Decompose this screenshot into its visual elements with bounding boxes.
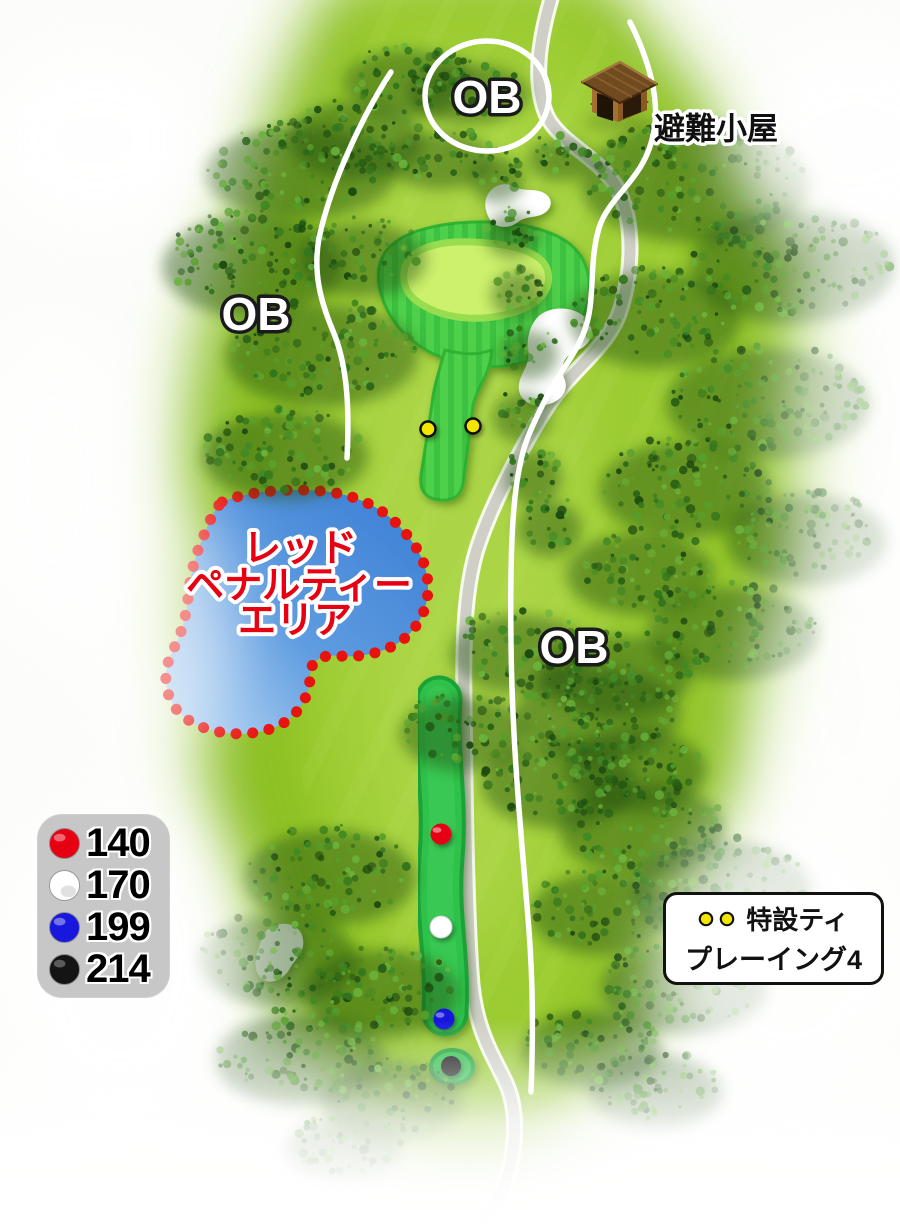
blue-tee-highlight <box>436 1012 445 1018</box>
bottom-fade <box>0 1020 900 1229</box>
legend-value-red: 140 <box>86 823 150 863</box>
special-tee-dot-left <box>421 422 436 437</box>
red-tee-icon <box>48 827 81 860</box>
penalty-label-line1: レッド <box>243 528 357 570</box>
white-tee-icon <box>48 869 81 902</box>
legend-value-white: 170 <box>86 865 150 905</box>
penalty-label-line3: エリア <box>238 600 352 642</box>
yellow-tee-icon <box>698 911 714 927</box>
special-tee-box: 特設ティ プレーイング4 <box>663 892 884 985</box>
golf-hole-guide-map: OB OB OB 避難小屋 レッド ペナルティー エリア 140 170 199 <box>0 0 900 1229</box>
legend-row-red: 140 <box>48 823 165 863</box>
red-tee-marker <box>431 824 452 845</box>
special-tee-label: 特設ティ <box>746 900 848 937</box>
legend-row-black: 214 <box>48 949 165 989</box>
hut-label: 避難小屋 <box>654 112 778 147</box>
special-tee-dots <box>698 911 735 927</box>
legend-row-white: 170 <box>48 865 165 905</box>
red-tee-highlight <box>433 827 442 833</box>
yellow-tee-icon <box>719 911 735 927</box>
special-tee-row: 特設ティ <box>698 900 848 937</box>
special-tee-dot-right <box>466 419 481 434</box>
ob-label-top: OB <box>453 71 522 123</box>
ob-label-left: OB <box>222 288 291 340</box>
legend-value-blue: 199 <box>86 907 150 947</box>
white-tee-marker <box>430 916 452 938</box>
ob-label-right: OB <box>540 621 609 673</box>
playing4-label: プレーイング4 <box>685 938 862 977</box>
tee-distance-legend: 140 170 199 214 <box>38 815 169 997</box>
legend-row-blue: 199 <box>48 907 165 947</box>
black-tee-icon <box>48 953 81 986</box>
blue-tee-icon <box>48 911 81 944</box>
course-map-canvas: OB OB OB 避難小屋 レッド ペナルティー エリア <box>0 0 900 1229</box>
legend-value-black: 214 <box>86 949 150 989</box>
